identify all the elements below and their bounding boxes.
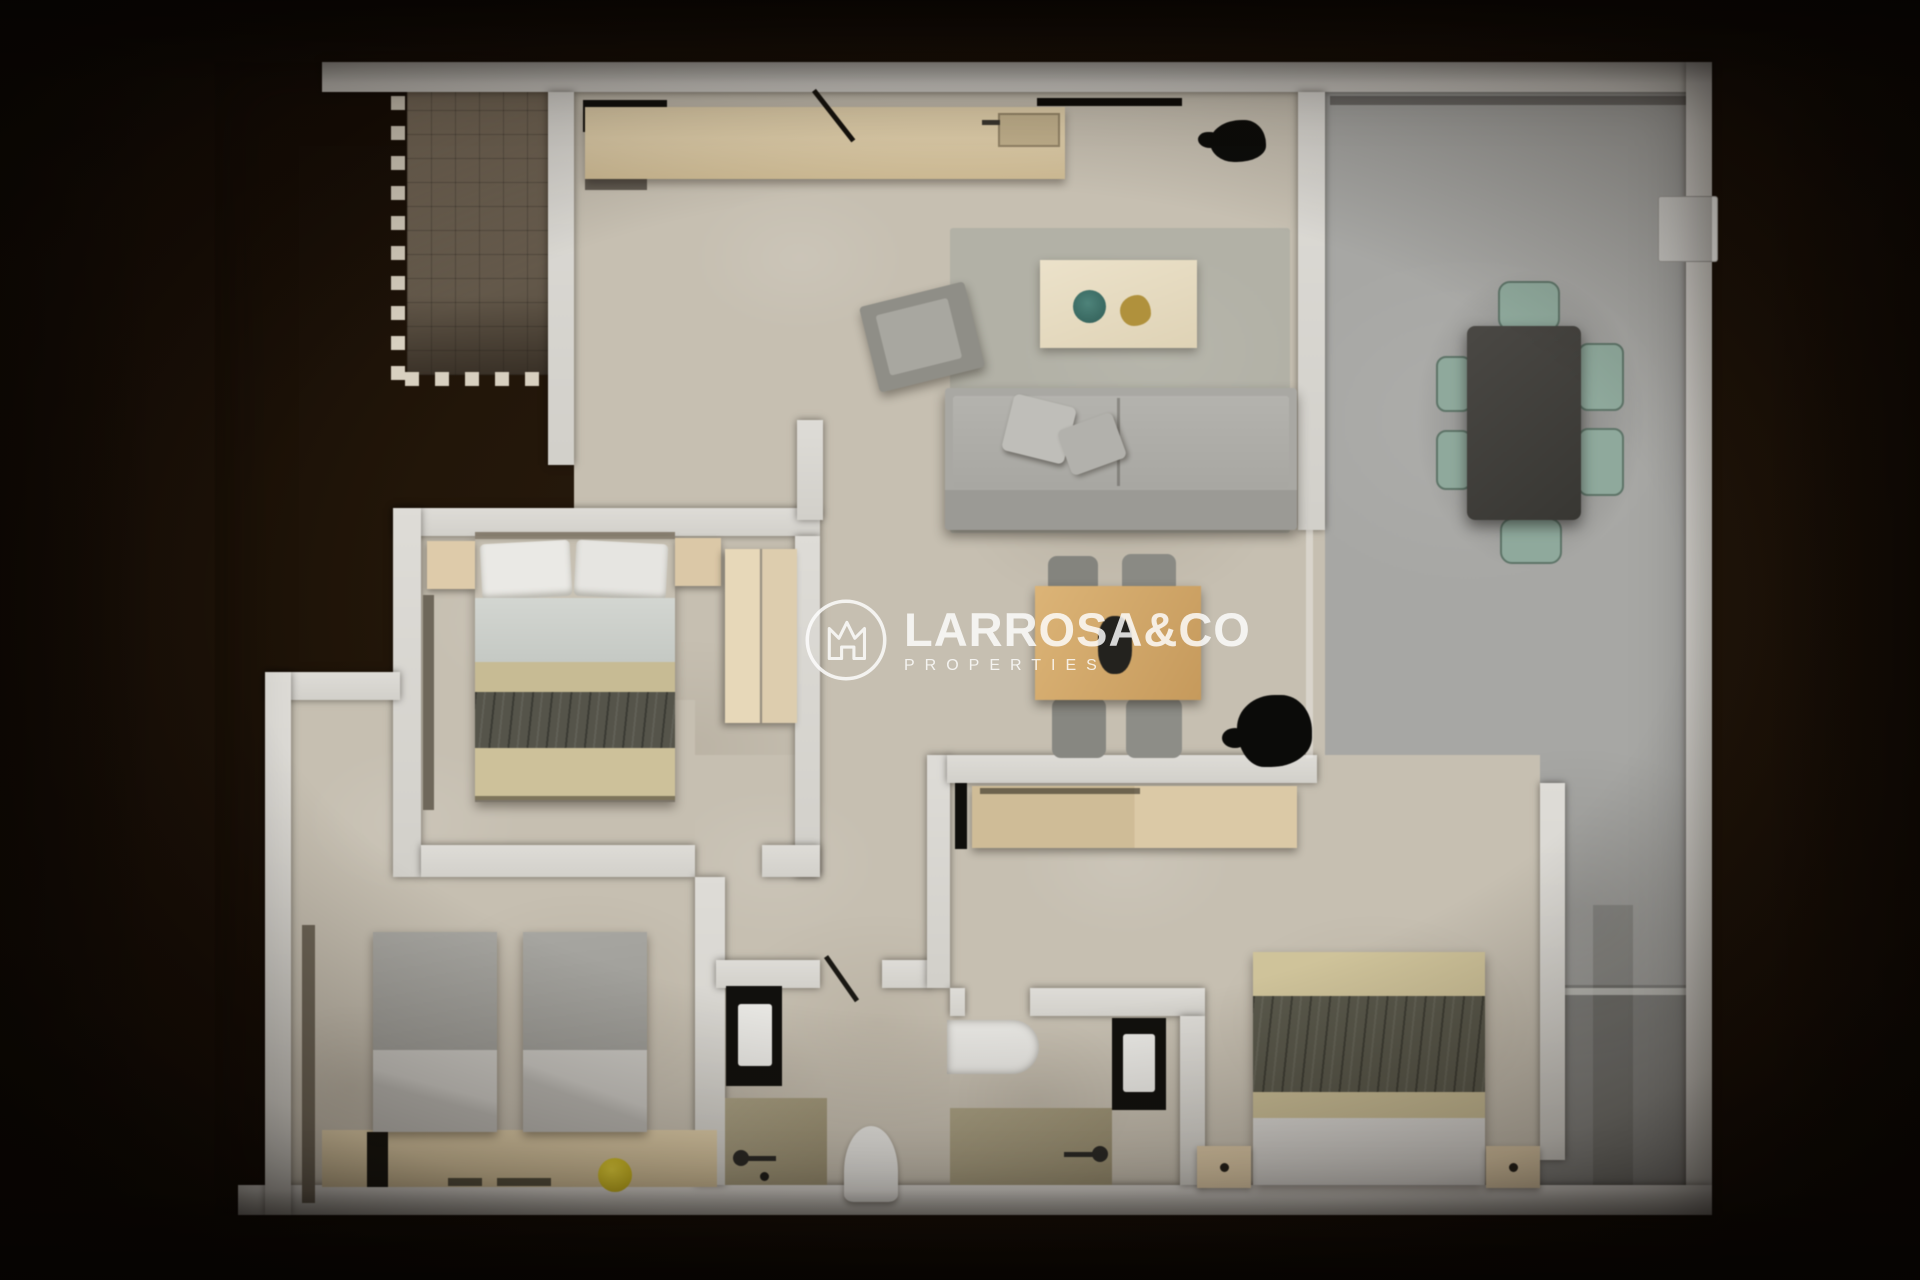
watermark: LARROSA&CO PROPERTIES	[802, 596, 1251, 684]
watermark-layer: LARROSA&CO PROPERTIES	[0, 0, 1920, 1280]
watermark-tagline: PROPERTIES	[904, 658, 1251, 674]
crown-house-logo-icon	[802, 596, 890, 684]
watermark-text: LARROSA&CO PROPERTIES	[904, 606, 1251, 674]
watermark-brand: LARROSA&CO	[904, 606, 1251, 653]
floorplan-render: LARROSA&CO PROPERTIES	[0, 0, 1920, 1280]
